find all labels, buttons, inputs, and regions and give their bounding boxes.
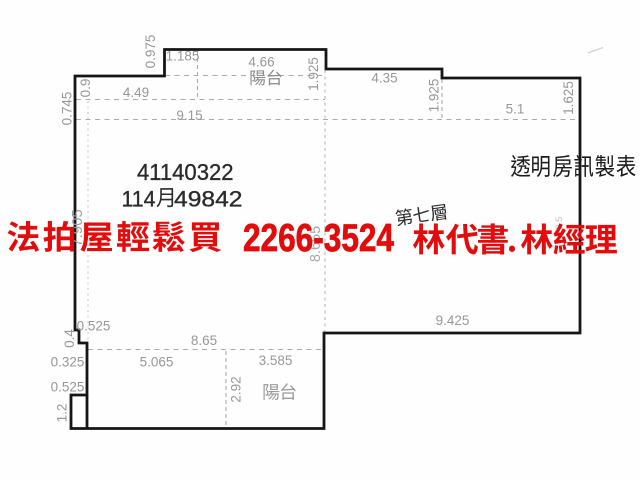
svg-text:49842: 49842 — [174, 187, 243, 212]
svg-text:1.2: 1.2 — [55, 404, 70, 423]
svg-text:2.92: 2.92 — [229, 376, 244, 402]
svg-text:2266-3524: 2266-3524 — [243, 217, 394, 260]
svg-text:0.975: 0.975 — [143, 35, 158, 69]
svg-text:114: 114 — [122, 187, 156, 212]
svg-text:4.66: 4.66 — [248, 55, 274, 70]
svg-text:9.15: 9.15 — [176, 108, 202, 123]
svg-text:41140322: 41140322 — [137, 159, 234, 185]
svg-text:9.425: 9.425 — [436, 313, 470, 328]
svg-text:0.525: 0.525 — [51, 380, 85, 395]
svg-text:1.925: 1.925 — [427, 79, 442, 113]
svg-text:4.49: 4.49 — [123, 85, 149, 100]
svg-text:5.1: 5.1 — [506, 102, 525, 117]
svg-text:1.185: 1.185 — [166, 49, 200, 64]
svg-text:4.35: 4.35 — [371, 71, 397, 86]
svg-text:1.625: 1.625 — [561, 81, 576, 115]
svg-text:0.9: 0.9 — [78, 79, 93, 98]
svg-text:1.925: 1.925 — [306, 57, 321, 91]
svg-text:5.065: 5.065 — [140, 355, 174, 370]
svg-text:3.585: 3.585 — [259, 353, 293, 368]
svg-text:0.325: 0.325 — [51, 355, 85, 370]
svg-text:0.745: 0.745 — [60, 92, 75, 126]
svg-text:0.4: 0.4 — [62, 329, 77, 348]
svg-text:8.65: 8.65 — [191, 333, 217, 348]
svg-text:0.525: 0.525 — [77, 319, 111, 334]
